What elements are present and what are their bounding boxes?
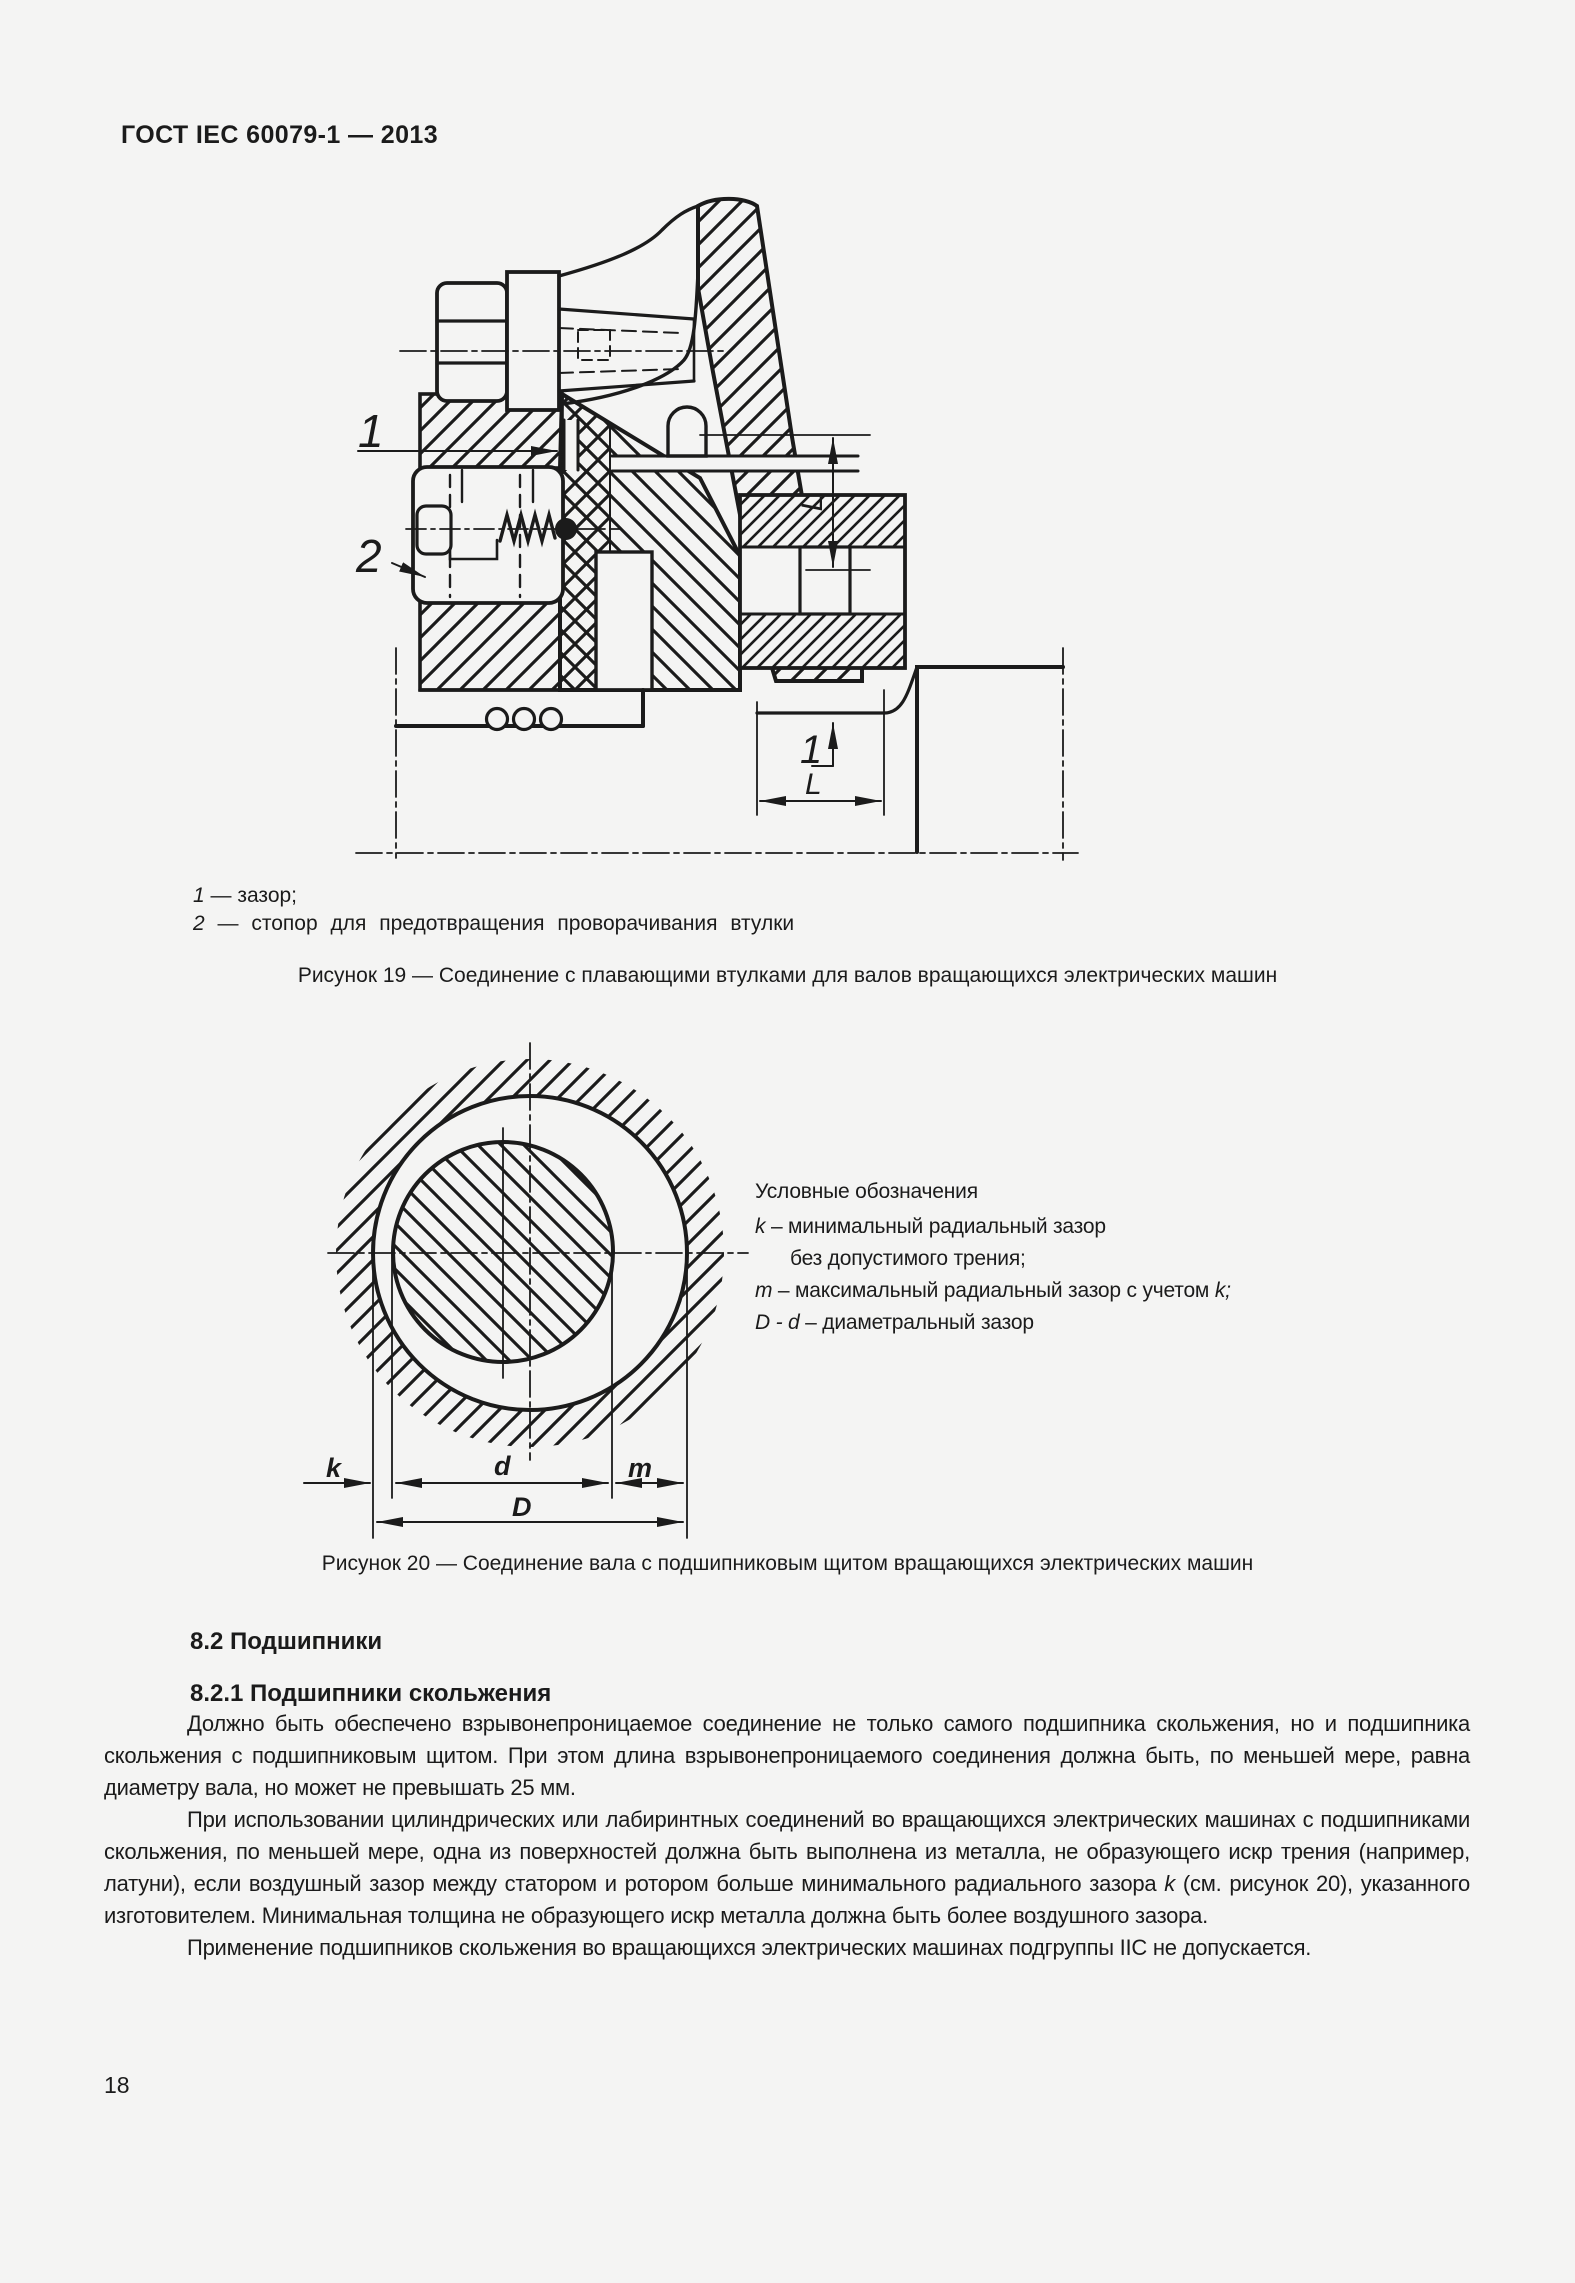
figure-19-drawing: 1 2 L L 1	[355, 199, 1078, 860]
figure20-legend-m: m – максимальный радиальный зазор с учет…	[755, 1275, 1395, 1307]
legend-m-text: – максимальный радиальный зазор с учетом	[772, 1279, 1215, 1302]
figure20-legend-title: Условные обозначения	[755, 1176, 1395, 1208]
paragraph-3: Применение подшипников скольжения во вра…	[104, 1932, 1470, 1964]
fig20-label-D: D	[512, 1492, 532, 1522]
legend-k-text: – минимальный радиальный зазор	[765, 1215, 1106, 1238]
figure19-item-2-num: 2	[193, 912, 205, 935]
document-page: 1 2 L L 1 k d m	[0, 0, 1575, 2283]
figure19-item-1-num: 1	[193, 884, 205, 907]
figure20-legend-dd: D - d – диаметральный зазор	[755, 1307, 1395, 1339]
section-heading-8-2: 8.2 Подшипники	[190, 1628, 382, 1656]
figure20-legend: Условные обозначения k – минимальный рад…	[755, 1176, 1395, 1339]
legend-k-symbol: k	[755, 1215, 765, 1238]
figure19-item-1: 1 — зазор;	[193, 882, 794, 910]
document-header: ГОСТ IEC 60079-1 — 2013	[121, 121, 438, 150]
figure19-item-1-text: — зазор;	[205, 884, 297, 907]
figure19-item-list: 1 — зазор; 2 — стопор для предотвращения…	[193, 882, 794, 938]
figure20-caption: Рисунок 20 — Соединение вала с подшипник…	[0, 1552, 1575, 1576]
legend-dd-text: – диаметральный зазор	[800, 1311, 1034, 1334]
paragraph-2: При использовании цилиндрических или лаб…	[104, 1804, 1470, 1932]
legend-m-k-symbol: k;	[1215, 1279, 1231, 1302]
fig19-pointer1-label: 1	[358, 405, 384, 457]
figure20-legend-k: k – минимальный радиальный зазор	[755, 1211, 1395, 1243]
fig19-dim-l-bottom: L	[805, 768, 822, 801]
fig20-label-m: m	[628, 1453, 652, 1483]
section-heading-8-2-1: 8.2.1 Подшипники скольжения	[190, 1680, 551, 1708]
paragraph-1: Должно быть обеспечено взрывонепроницаем…	[104, 1708, 1470, 1804]
fig20-label-k: k	[326, 1453, 343, 1483]
figure-20-drawing: k d m D	[304, 1043, 748, 1538]
figure19-caption: Рисунок 19 — Соединение с плавающими вту…	[0, 964, 1575, 988]
fig19-pointer2-label: 2	[355, 530, 382, 582]
legend-m-symbol: m	[755, 1279, 772, 1302]
fig19-dim-l-vertical: L	[796, 495, 829, 512]
legend-dd-symbol: D - d	[755, 1311, 800, 1334]
fig19-pointer1b-label: 1	[800, 728, 822, 772]
body-text: Должно быть обеспечено взрывонепроницаем…	[104, 1708, 1470, 1964]
figure19-item-2-text: — стопор для предотвращения проворачиван…	[205, 912, 794, 935]
page-number: 18	[104, 2072, 130, 2099]
figure19-item-2: 2 — стопор для предотвращения проворачив…	[193, 910, 794, 938]
paragraph-2-k: k	[1164, 1871, 1175, 1896]
fig20-label-d: d	[494, 1451, 511, 1481]
figure20-legend-k2: без допустимого трения;	[755, 1243, 1395, 1275]
